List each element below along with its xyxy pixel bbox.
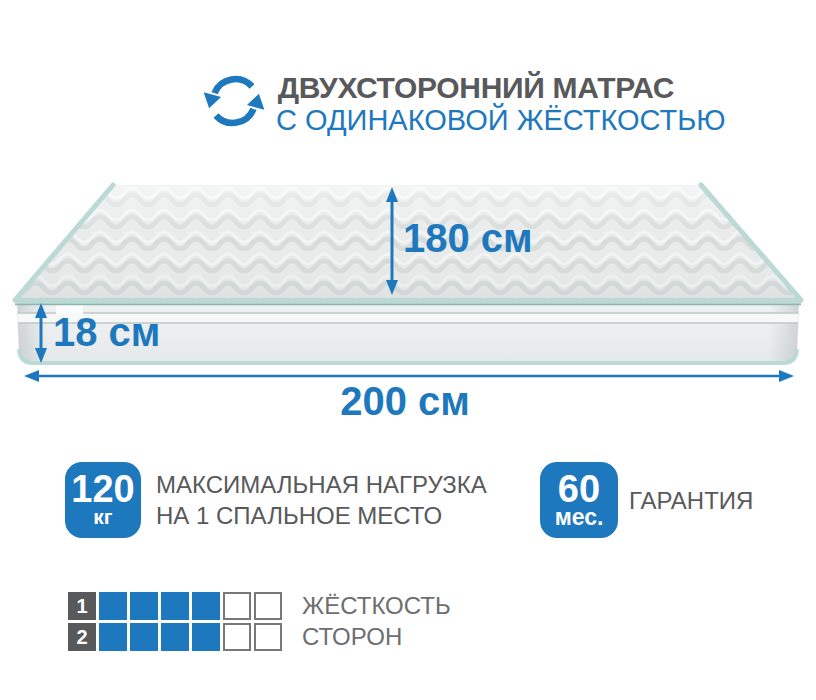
firmness-row-side1: 1 ЖЁСТКОСТЬ xyxy=(68,592,451,620)
warranty-badge: 60 мес. xyxy=(540,462,618,538)
depth-label: 180 см xyxy=(403,216,533,260)
firmness-cell-empty xyxy=(223,592,251,620)
width-label: 200 см xyxy=(340,379,470,423)
max-load-unit: кг xyxy=(93,506,112,528)
mattress-illustration: 180 см 18 см 200 см xyxy=(0,163,816,428)
side-number-badge: 1 xyxy=(68,592,96,620)
firmness-cell-empty xyxy=(223,623,251,651)
firmness-cell-filled xyxy=(99,592,127,620)
firmness-cell-filled xyxy=(99,623,127,651)
warranty-value: 60 xyxy=(558,472,600,506)
firmness-cell-filled xyxy=(192,623,220,651)
dimension-width: 200 см xyxy=(24,370,794,423)
header-text: ДВУХСТОРОННИЙ МАТРАС С ОДИНАКОВОЙ ЖЁСТКО… xyxy=(276,72,676,136)
warranty-label: ГАРАНТИЯ xyxy=(629,462,753,538)
firmness-label-line2: СТОРОН xyxy=(302,623,402,651)
firmness-row-side2: 2 СТОРОН xyxy=(68,623,451,651)
max-load-badge: 120 кг xyxy=(65,462,141,538)
page-title: ДВУХСТОРОННИЙ МАТРАС xyxy=(276,72,676,103)
firmness-label-line1: ЖЁСТКОСТЬ xyxy=(302,592,451,620)
warranty-unit: мес. xyxy=(555,506,604,528)
page-subtitle: С ОДИНАКОВОЙ ЖЁСТКОСТЬЮ xyxy=(276,105,676,136)
firmness-cell-filled xyxy=(130,623,158,651)
firmness-scale: 1 ЖЁСТКОСТЬ 2 СТОРОН xyxy=(68,592,451,654)
firmness-cell-filled xyxy=(161,623,189,651)
firmness-cells xyxy=(99,592,282,620)
max-load-label-line1: МАКСИМАЛЬНАЯ НАГРУЗКА xyxy=(156,469,487,500)
warranty-label-line1: ГАРАНТИЯ xyxy=(629,485,753,516)
mattress-infographic: ДВУХСТОРОННИЙ МАТРАС С ОДИНАКОВОЙ ЖЁСТКО… xyxy=(0,0,816,700)
flip-arrows-icon xyxy=(200,67,268,135)
side-number-badge: 2 xyxy=(68,623,96,651)
firmness-cell-empty xyxy=(254,623,282,651)
firmness-cell-filled xyxy=(130,592,158,620)
firmness-cells xyxy=(99,623,282,651)
max-load-label: МАКСИМАЛЬНАЯ НАГРУЗКА НА 1 СПАЛЬНОЕ МЕСТ… xyxy=(156,462,487,538)
firmness-cell-empty xyxy=(254,592,282,620)
firmness-cell-filled xyxy=(192,592,220,620)
height-label: 18 см xyxy=(53,310,160,354)
firmness-cell-filled xyxy=(161,592,189,620)
max-load-value: 120 xyxy=(71,472,134,506)
max-load-label-line2: НА 1 СПАЛЬНОЕ МЕСТО xyxy=(156,500,487,531)
